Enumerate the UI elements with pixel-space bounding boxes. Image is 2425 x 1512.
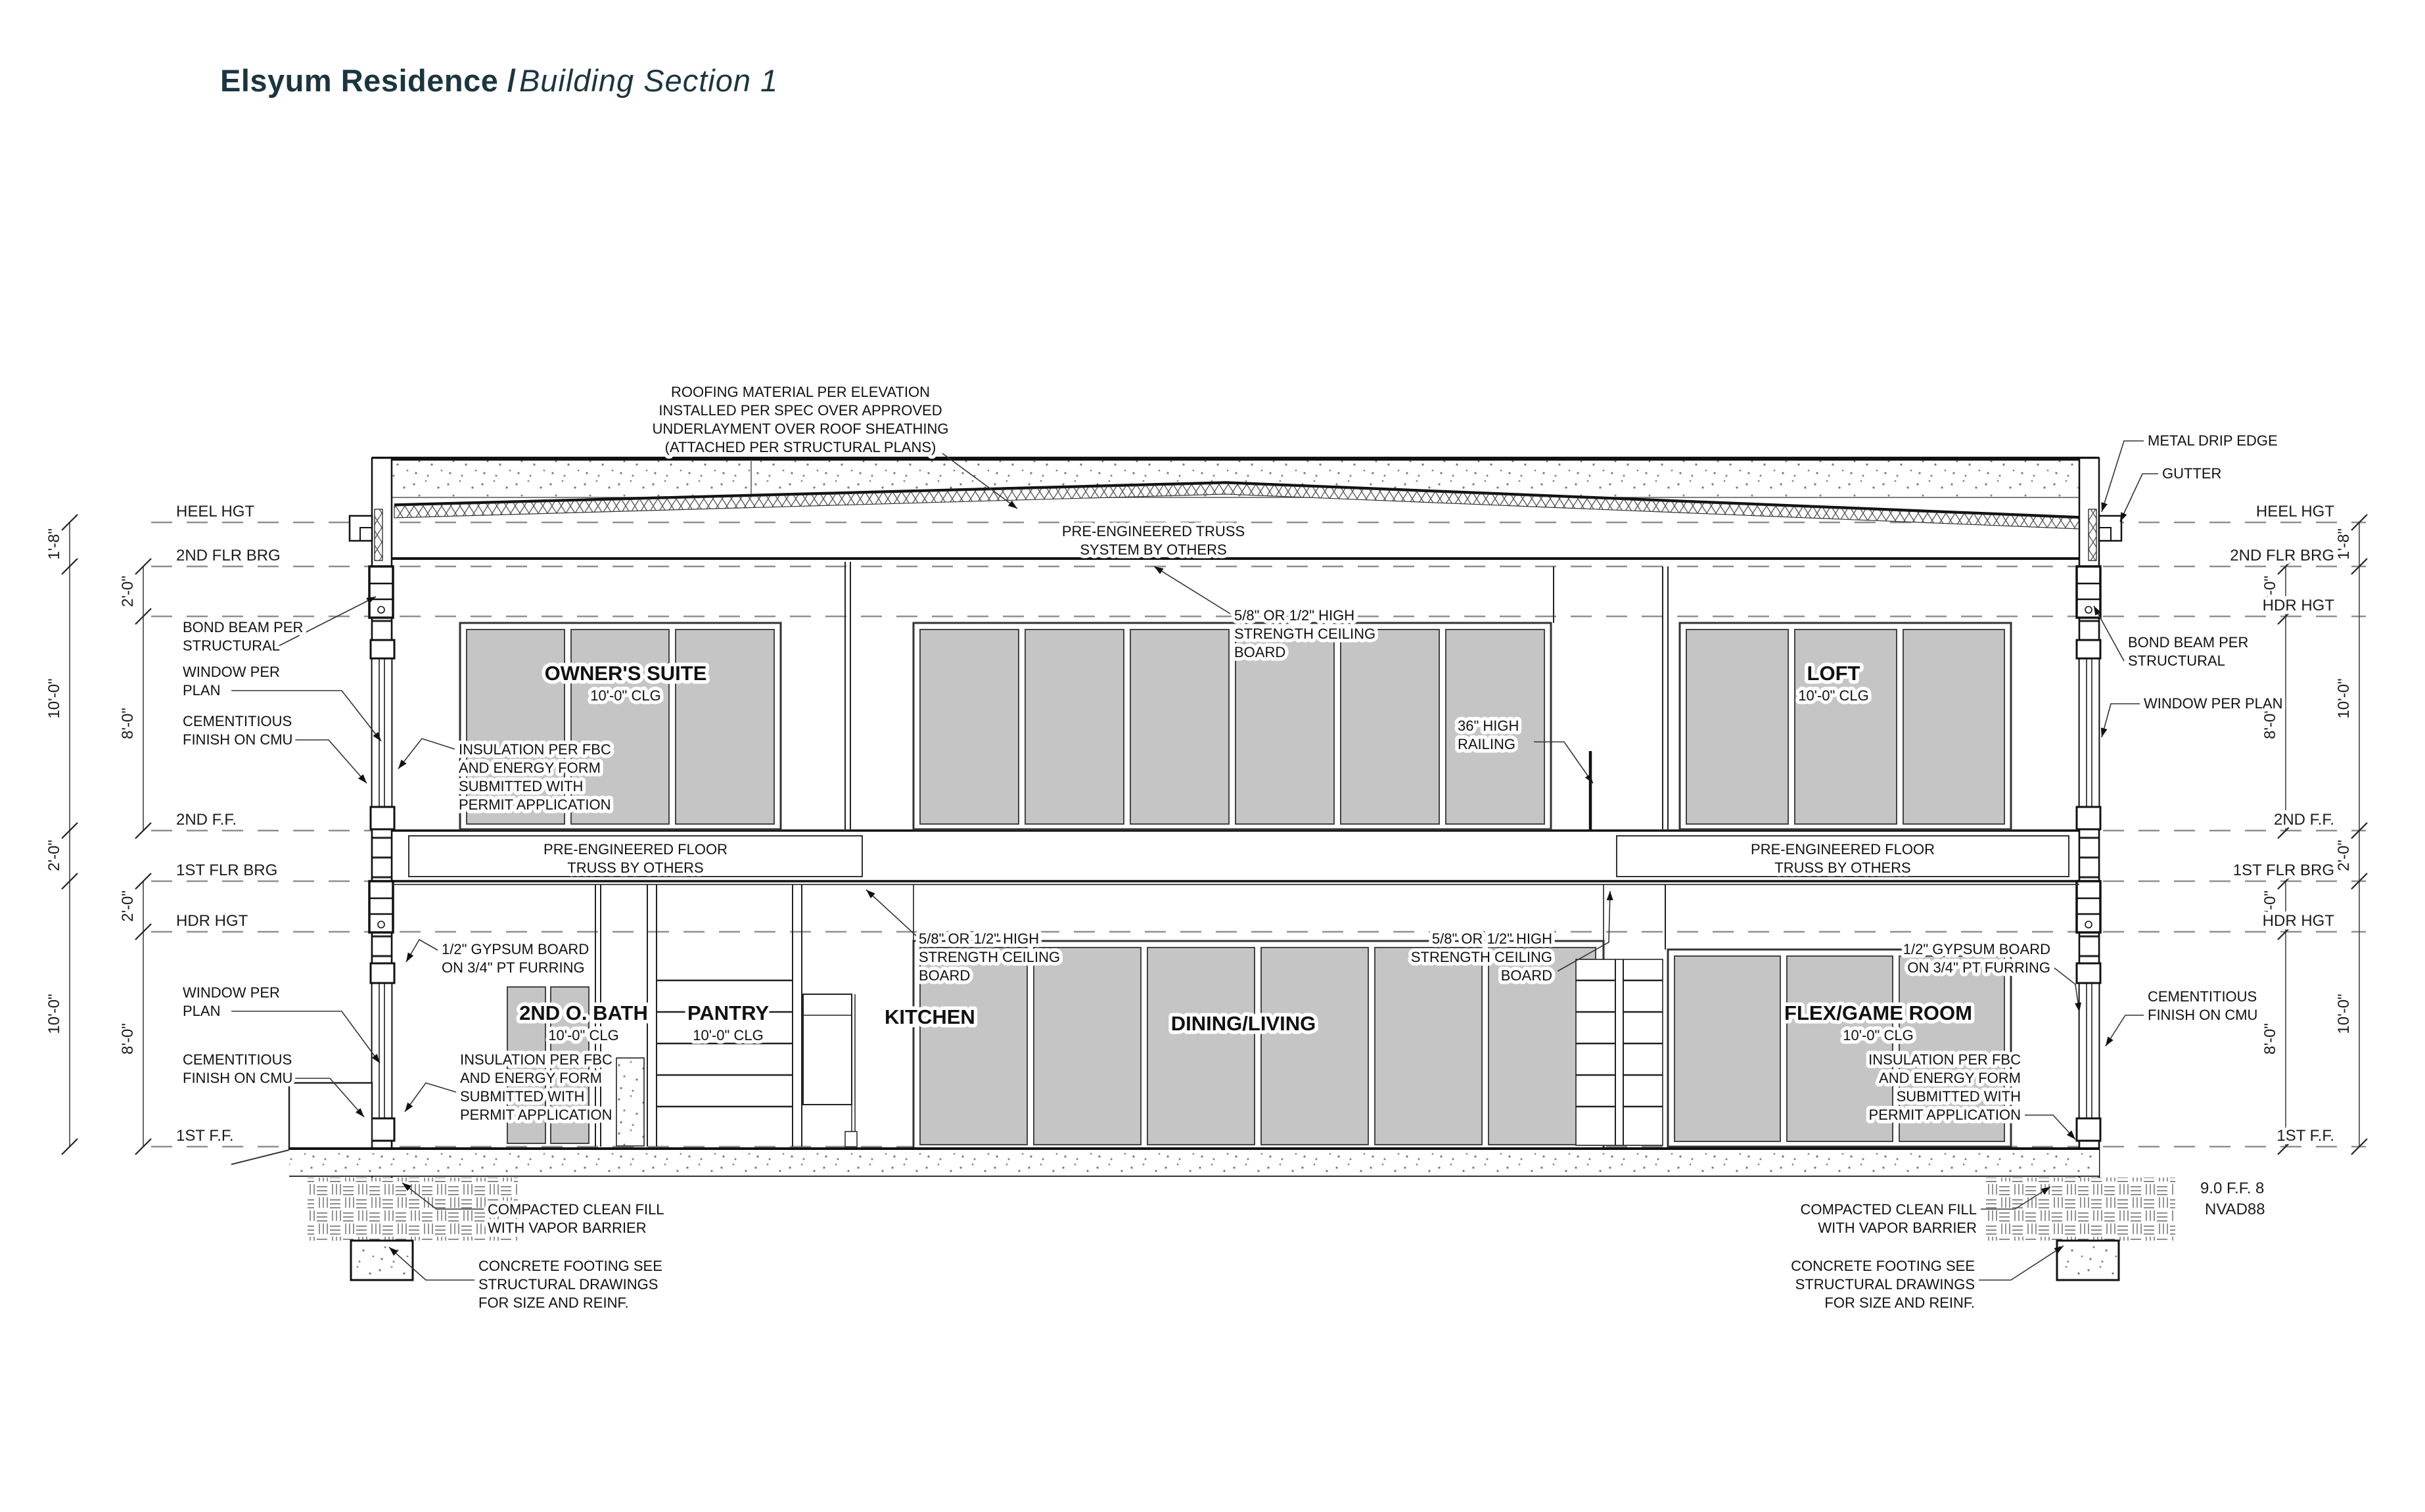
leader-cement-right bbox=[2106, 1015, 2144, 1046]
bond-beam-left-2f bbox=[369, 566, 393, 618]
drawing-title: Elsyum Residence / Building Section 1 bbox=[220, 62, 778, 99]
dim-left-2a: 2'-0" bbox=[45, 840, 63, 871]
leader-ceiling-2f bbox=[1154, 566, 1230, 614]
svg-text:FINISH ON CMU: FINISH ON CMU bbox=[2148, 1007, 2257, 1023]
room-bath: 2ND O. BATH bbox=[519, 1001, 648, 1024]
section-canvas: 1'-8" 10'-0" 2'-0" 10'-0" 2'-0" 8'-0" 2'… bbox=[0, 0, 2425, 1509]
leader-footing-right bbox=[1979, 1246, 2064, 1280]
svg-text:CONCRETE FOOTING SEE: CONCRETE FOOTING SEE bbox=[478, 1258, 662, 1274]
slab bbox=[289, 1150, 2099, 1176]
note-bond-beam-right: BOND BEAM PER STRUCTURAL bbox=[2128, 634, 2248, 669]
leader-gutter bbox=[2120, 474, 2158, 522]
svg-text:FINISH ON CMU: FINISH ON CMU bbox=[183, 1070, 292, 1086]
label-brg2-left: 2ND FLR BRG bbox=[176, 547, 281, 564]
wall-window-right-2f bbox=[2077, 640, 2100, 829]
room-loft: LOFT bbox=[1807, 662, 1860, 685]
svg-text:PLAN: PLAN bbox=[183, 682, 220, 699]
label-hdr2-right: HDR HGT bbox=[2263, 597, 2335, 614]
note-window-plan-left-2f: WINDOW PER PLAN bbox=[183, 664, 280, 699]
footing-right bbox=[2057, 1241, 2119, 1280]
dim-left-10a: 10'-0" bbox=[45, 678, 63, 718]
note-footing-right: CONCRETE FOOTING SEE STRUCTURAL DRAWINGS… bbox=[1791, 1258, 1975, 1311]
svg-text:36" HIGH: 36" HIGH bbox=[1458, 718, 1519, 734]
label-hdr1-left: HDR HGT bbox=[176, 912, 248, 930]
note-cementitious-right: CEMENTITIOUS FINISH ON CMU bbox=[2148, 988, 2257, 1023]
note-gypsum-left: 1/2" GYPSUM BOARD ON 3/4" PT FURRING bbox=[442, 941, 589, 976]
second-floor-band bbox=[392, 831, 2079, 884]
room-kitchen: KITCHEN bbox=[885, 1005, 975, 1028]
svg-text:SUBMITTED WITH: SUBMITTED WITH bbox=[460, 1088, 584, 1105]
svg-text:BOARD: BOARD bbox=[919, 967, 970, 984]
svg-text:INSULATION PER FBC: INSULATION PER FBC bbox=[459, 741, 611, 758]
svg-text:COMPACTED CLEAN FILL: COMPACTED CLEAN FILL bbox=[488, 1201, 664, 1218]
svg-text:TRUSS BY OTHERS: TRUSS BY OTHERS bbox=[567, 859, 703, 876]
label-ff2-right: 2ND F.F. bbox=[2274, 811, 2334, 829]
room-flex-clg: 10'-0" CLG bbox=[1843, 1027, 1913, 1043]
svg-text:TRUSS BY OTHERS: TRUSS BY OTHERS bbox=[1774, 859, 1910, 876]
svg-text:STRENGTH CEILING: STRENGTH CEILING bbox=[1411, 949, 1552, 965]
dim-right-10a: 10'-0" bbox=[2335, 678, 2353, 718]
label-brg1-right: 1ST FLR BRG bbox=[2233, 861, 2334, 879]
svg-text:5/8" OR 1/2" HIGH: 5/8" OR 1/2" HIGH bbox=[1432, 930, 1552, 947]
svg-text:CEMENTITIOUS: CEMENTITIOUS bbox=[183, 713, 292, 729]
svg-text:COMPACTED CLEAN FILL: COMPACTED CLEAN FILL bbox=[1800, 1201, 1977, 1218]
leader-cement-left-2f bbox=[284, 740, 367, 783]
svg-text:5/8" OR 1/2" HIGH: 5/8" OR 1/2" HIGH bbox=[1234, 607, 1354, 624]
svg-text:PERMIT APPLICATION: PERMIT APPLICATION bbox=[460, 1107, 612, 1123]
dim-left-8b: 8'-0" bbox=[119, 1023, 137, 1055]
label-ff1-right: 1ST F.F. bbox=[2276, 1127, 2334, 1145]
leader-insul-left-2f bbox=[398, 739, 455, 769]
note-drip-edge: METAL DRIP EDGE bbox=[2148, 432, 2278, 449]
svg-text:WINDOW PER: WINDOW PER bbox=[183, 664, 280, 680]
svg-text:WITH VAPOR BARRIER: WITH VAPOR BARRIER bbox=[1818, 1220, 1977, 1236]
svg-text:BOND BEAM PER: BOND BEAM PER bbox=[183, 619, 303, 635]
note-window-plan-left-1f: WINDOW PER PLAN bbox=[183, 984, 280, 1019]
roof-assembly bbox=[372, 459, 2099, 559]
svg-text:INSULATION PER FBC: INSULATION PER FBC bbox=[460, 1051, 612, 1068]
wall-window-right-1f bbox=[2077, 963, 2100, 1141]
bond-beam-right-2f bbox=[2077, 566, 2100, 618]
label-brg1-left: 1ST FLR BRG bbox=[176, 861, 277, 879]
dim-left-2b: 2'-0" bbox=[119, 576, 137, 607]
note-footing-left: CONCRETE FOOTING SEE STRUCTURAL DRAWINGS… bbox=[478, 1258, 662, 1311]
room-flex: FLEX/GAME ROOM bbox=[1784, 1001, 1972, 1024]
dim-left-8a: 8'-0" bbox=[119, 708, 137, 739]
svg-text:INSULATION PER FBC: INSULATION PER FBC bbox=[1868, 1051, 2021, 1068]
sheet-name: Building Section 1 bbox=[519, 63, 778, 98]
svg-text:PLAN: PLAN bbox=[183, 1003, 220, 1019]
second-floor-windows bbox=[460, 562, 2011, 831]
label-ff1-left: 1ST F.F. bbox=[176, 1127, 234, 1145]
kitchen-casework bbox=[803, 994, 857, 1147]
note-roofing: ROOFING MATERIAL PER ELEVATION INSTALLED… bbox=[652, 384, 948, 455]
svg-text:1/2" GYPSUM BOARD: 1/2" GYPSUM BOARD bbox=[1903, 941, 2050, 957]
room-dining: DINING/LIVING bbox=[1171, 1012, 1316, 1035]
svg-text:SUBMITTED WITH: SUBMITTED WITH bbox=[459, 778, 583, 794]
room-pantry: PANTRY bbox=[687, 1001, 769, 1024]
svg-text:STRUCTURAL DRAWINGS: STRUCTURAL DRAWINGS bbox=[1795, 1276, 1975, 1293]
svg-text:ON 3/4" PT FURRING: ON 3/4" PT FURRING bbox=[1907, 959, 2050, 976]
leader-ceiling-1f-left bbox=[866, 890, 916, 936]
svg-text:1/2" GYPSUM BOARD: 1/2" GYPSUM BOARD bbox=[442, 941, 589, 957]
svg-text:PERMIT APPLICATION: PERMIT APPLICATION bbox=[1869, 1107, 2021, 1123]
svg-text:PRE-ENGINEERED FLOOR: PRE-ENGINEERED FLOOR bbox=[1751, 841, 1935, 858]
dim-right-2a: 2'-0" bbox=[2335, 840, 2353, 871]
bath-vanity bbox=[616, 1058, 644, 1146]
soil-left bbox=[308, 1178, 518, 1241]
svg-text:CEMENTITIOUS: CEMENTITIOUS bbox=[2148, 988, 2257, 1005]
svg-text:SYSTEM BY OTHERS: SYSTEM BY OTHERS bbox=[1080, 541, 1226, 558]
note-cementitious-left-1f: CEMENTITIOUS FINISH ON CMU bbox=[183, 1051, 292, 1086]
leader-insul-left-1f bbox=[405, 1083, 456, 1112]
pantry-shelves bbox=[657, 980, 793, 1107]
dim-right-heel: 1'-8" bbox=[2335, 528, 2353, 560]
room-owners-suite: OWNER'S SUITE bbox=[545, 662, 707, 685]
label-heel-right: HEEL HGT bbox=[2256, 503, 2334, 520]
leader-gypsum-right bbox=[2054, 968, 2079, 1012]
svg-text:PERMIT APPLICATION: PERMIT APPLICATION bbox=[459, 796, 611, 813]
dim-right-10b: 10'-0" bbox=[2335, 994, 2353, 1034]
svg-text:PRE-ENGINEERED FLOOR: PRE-ENGINEERED FLOOR bbox=[543, 841, 727, 858]
svg-text:FINISH ON CMU: FINISH ON CMU bbox=[183, 731, 292, 748]
dim-left-heel: 1'-8" bbox=[45, 528, 63, 560]
leader-window-right bbox=[2102, 704, 2140, 737]
svg-text:STRUCTURAL DRAWINGS: STRUCTURAL DRAWINGS bbox=[478, 1276, 658, 1293]
building-section-drawing: Elsyum Residence / Building Section 1 bbox=[0, 0, 2425, 1509]
svg-text:PRE-ENGINEERED TRUSS: PRE-ENGINEERED TRUSS bbox=[1062, 523, 1245, 539]
room-pantry-clg: 10'-0" CLG bbox=[693, 1027, 763, 1043]
svg-text:UNDERLAYMENT OVER ROOF SHEATHI: UNDERLAYMENT OVER ROOF SHEATHING bbox=[652, 421, 948, 437]
dim-left-10b: 10'-0" bbox=[45, 994, 63, 1034]
dim-right-8b: 8'-0" bbox=[2261, 1023, 2279, 1055]
room-bath-clg: 10'-0" CLG bbox=[548, 1027, 618, 1043]
svg-text:INSTALLED PER SPEC OVER APPROV: INSTALLED PER SPEC OVER APPROVED bbox=[658, 402, 942, 419]
svg-text:AND ENERGY FORM: AND ENERGY FORM bbox=[1879, 1070, 2021, 1086]
svg-text:WITH VAPOR BARRIER: WITH VAPOR BARRIER bbox=[488, 1220, 647, 1236]
label-hdr1-right: HDR HGT bbox=[2263, 912, 2335, 930]
svg-text:FOR SIZE AND REINF.: FOR SIZE AND REINF. bbox=[478, 1294, 629, 1311]
label-brg2-right: 2ND FLR BRG bbox=[2230, 547, 2334, 564]
svg-text:AND ENERGY FORM: AND ENERGY FORM bbox=[459, 760, 601, 776]
svg-text:STRUCTURAL: STRUCTURAL bbox=[2128, 653, 2225, 669]
leader-gypsum-left bbox=[406, 940, 438, 962]
dim-left-2c: 2'-0" bbox=[119, 890, 137, 922]
note-cementitious-left-2f: CEMENTITIOUS FINISH ON CMU bbox=[183, 713, 292, 748]
svg-text:RAILING: RAILING bbox=[1458, 736, 1515, 752]
svg-text:5/8" OR 1/2" HIGH: 5/8" OR 1/2" HIGH bbox=[919, 930, 1039, 947]
project-name: Elsyum Residence / bbox=[220, 63, 516, 98]
svg-text:(ATTACHED PER STRUCTURAL PLANS: (ATTACHED PER STRUCTURAL PLANS) bbox=[665, 439, 936, 455]
svg-text:CEMENTITIOUS: CEMENTITIOUS bbox=[183, 1051, 292, 1068]
grade-line bbox=[231, 1150, 289, 1164]
svg-text:SUBMITTED WITH: SUBMITTED WITH bbox=[1897, 1088, 2021, 1105]
note-window-plan-right: WINDOW PER PLAN bbox=[2144, 695, 2282, 712]
svg-text:STRENGTH CEILING: STRENGTH CEILING bbox=[919, 949, 1060, 965]
svg-text:AND ENERGY FORM: AND ENERGY FORM bbox=[460, 1070, 602, 1086]
leader-insul-right bbox=[2025, 1115, 2075, 1139]
label-datum-1: 9.0 F.F. 8 bbox=[2200, 1180, 2264, 1197]
note-compacted-right: COMPACTED CLEAN FILL WITH VAPOR BARRIER bbox=[1800, 1201, 1977, 1236]
note-truss-system: PRE-ENGINEERED TRUSS SYSTEM BY OTHERS bbox=[1062, 523, 1245, 558]
label-ff2-left: 2ND F.F. bbox=[176, 811, 237, 829]
bond-beam-right-1f bbox=[2077, 881, 2100, 932]
bond-beam-left-1f bbox=[369, 881, 393, 932]
shelf-unit-right bbox=[1576, 959, 1663, 1145]
entry-stoop bbox=[289, 1083, 372, 1149]
room-owners-clg: 10'-0" CLG bbox=[590, 687, 660, 704]
note-gutter: GUTTER bbox=[2162, 465, 2221, 482]
svg-text:FOR SIZE AND REINF.: FOR SIZE AND REINF. bbox=[1824, 1294, 1975, 1311]
svg-text:CONCRETE FOOTING SEE: CONCRETE FOOTING SEE bbox=[1791, 1258, 1975, 1274]
svg-text:BOARD: BOARD bbox=[1234, 644, 1285, 660]
leader-drip-edge bbox=[2102, 441, 2144, 512]
svg-text:STRENGTH CEILING: STRENGTH CEILING bbox=[1234, 626, 1375, 642]
svg-text:WINDOW PER: WINDOW PER bbox=[183, 984, 280, 1001]
svg-text:ROOFING MATERIAL PER ELEVATION: ROOFING MATERIAL PER ELEVATION bbox=[671, 384, 930, 400]
wall-window-left-1f bbox=[371, 963, 394, 1141]
label-heel-left: HEEL HGT bbox=[176, 503, 254, 520]
svg-text:STRUCTURAL: STRUCTURAL bbox=[183, 637, 280, 654]
svg-text:BOND BEAM PER: BOND BEAM PER bbox=[2128, 634, 2248, 651]
dim-right-8a: 8'-0" bbox=[2261, 708, 2279, 739]
wall-window-left-2f bbox=[371, 640, 394, 829]
label-datum-2: NVAD88 bbox=[2205, 1201, 2265, 1218]
svg-text:ON 3/4" PT FURRING: ON 3/4" PT FURRING bbox=[442, 959, 585, 976]
room-loft-clg: 10'-0" CLG bbox=[1798, 687, 1868, 704]
svg-text:BOARD: BOARD bbox=[1501, 967, 1552, 984]
note-bond-beam-left: BOND BEAM PER STRUCTURAL bbox=[183, 619, 303, 654]
